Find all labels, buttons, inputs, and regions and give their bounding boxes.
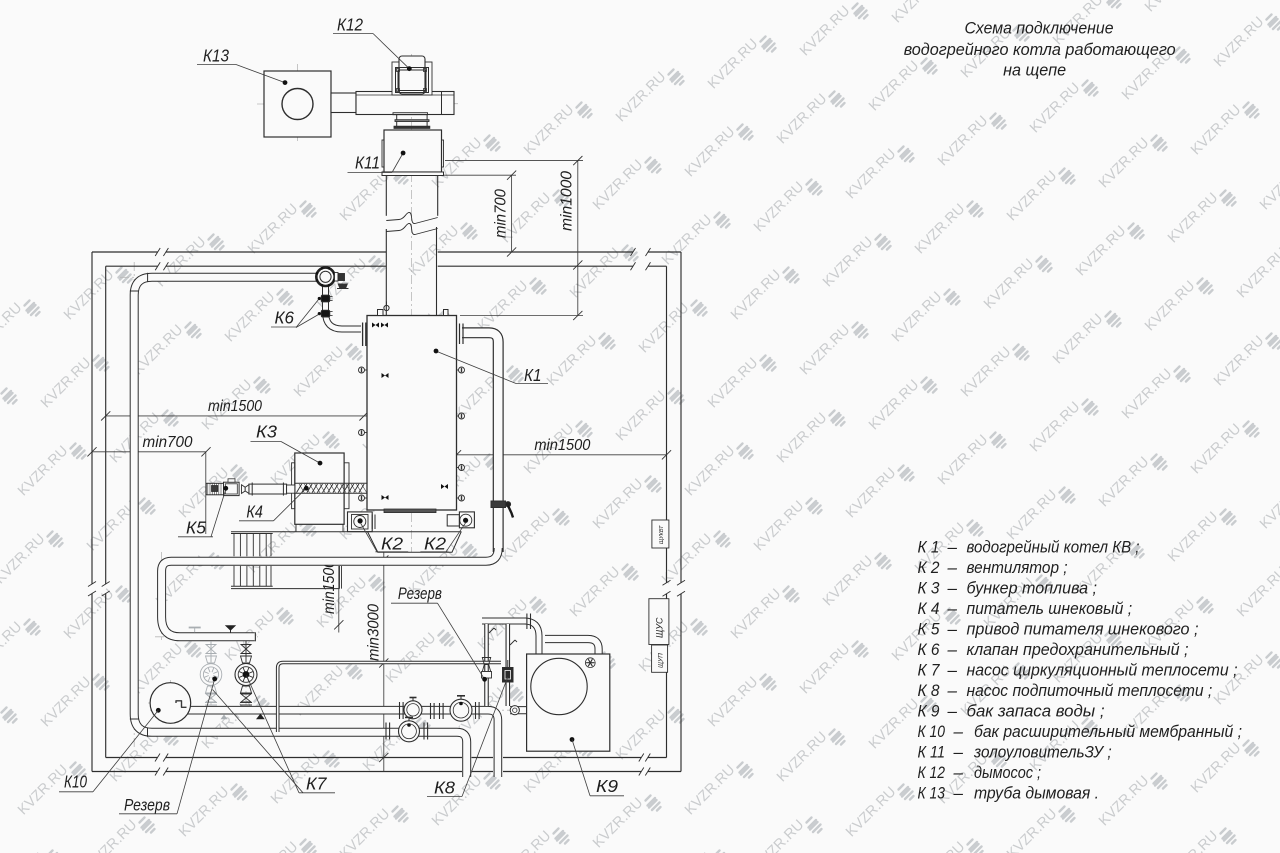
svg-text:К3: К3 (256, 422, 277, 442)
svg-text:К13: К13 (203, 46, 229, 66)
svg-text:–: – (953, 722, 964, 741)
svg-text:–: – (947, 620, 958, 639)
svg-text:min1500: min1500 (208, 398, 262, 415)
svg-text:К 5: К 5 (918, 620, 940, 639)
svg-text:К2: К2 (381, 534, 403, 554)
svg-text:К 3: К 3 (918, 579, 940, 598)
svg-text:водогрейного котла работающего: водогрейного котла работающего (904, 40, 1176, 59)
svg-text:водогрейный котел КВ ;: водогрейный котел КВ ; (967, 538, 1140, 557)
svg-text:труба дымовая .: труба дымовая . (974, 784, 1099, 803)
svg-text:Резерв: Резерв (124, 796, 170, 815)
svg-text:–: – (947, 640, 958, 659)
svg-text:клапан предохранительный ;: клапан предохранительный ; (967, 640, 1189, 659)
svg-text:Резерв: Резерв (398, 584, 442, 603)
svg-text:ЩУП: ЩУП (658, 653, 665, 668)
svg-text:К6: К6 (275, 308, 295, 328)
svg-text:К 1: К 1 (918, 538, 940, 557)
svg-text:К5: К5 (186, 518, 206, 538)
svg-text:–: – (947, 681, 958, 700)
svg-text:питатель шнековый ;: питатель шнековый ; (967, 599, 1133, 618)
svg-text:ЩУКВТ: ЩУКВТ (659, 525, 665, 544)
svg-text:бункер топлива ;: бункер топлива ; (967, 579, 1098, 598)
svg-text:К 2: К 2 (918, 558, 940, 577)
svg-text:min1500: min1500 (321, 560, 338, 614)
svg-text:дымосос ;: дымосос ; (974, 763, 1041, 782)
svg-text:К12: К12 (337, 15, 363, 35)
svg-text:ЩУС: ЩУС (655, 617, 665, 638)
svg-text:min700: min700 (143, 434, 193, 451)
svg-text:–: – (947, 661, 958, 680)
svg-text:min1000: min1000 (559, 171, 576, 231)
svg-text:К 6: К 6 (918, 640, 940, 659)
svg-text:бак расширительный мембранный: бак расширительный мембранный ; (974, 722, 1242, 741)
svg-text:привод питателя шнекового ;: привод питателя шнекового ; (967, 620, 1199, 639)
svg-text:К1: К1 (524, 365, 542, 385)
svg-text:К 11: К 11 (918, 743, 946, 762)
svg-text:К 7: К 7 (918, 661, 940, 680)
svg-text:К 8: К 8 (918, 681, 940, 700)
svg-text:насос циркуляционный теплосети: насос циркуляционный теплосети ; (967, 661, 1238, 680)
svg-text:–: – (953, 784, 964, 803)
svg-text:К8: К8 (434, 778, 455, 798)
svg-text:–: – (947, 599, 958, 618)
svg-text:К9: К9 (596, 776, 618, 796)
svg-text:Схема подключение: Схема подключение (965, 19, 1114, 38)
svg-text:К 12: К 12 (918, 763, 946, 782)
svg-text:К11: К11 (355, 153, 380, 173)
svg-text:К4: К4 (246, 502, 263, 522)
svg-text:К 9: К 9 (918, 702, 940, 721)
svg-text:–: – (953, 743, 964, 762)
svg-text:–: – (947, 558, 958, 577)
svg-text:насос подпиточный теплосети ;: насос подпиточный теплосети ; (967, 681, 1213, 700)
svg-text:–: – (947, 579, 958, 598)
svg-text:К 13: К 13 (918, 784, 946, 803)
svg-text:min1500: min1500 (534, 437, 590, 454)
svg-text:на щепе: на щепе (1003, 61, 1066, 80)
svg-text:min700: min700 (493, 189, 510, 238)
svg-text:К 10: К 10 (918, 722, 946, 741)
svg-text:–: – (953, 763, 964, 782)
svg-text:золоуловительЗУ ;: золоуловительЗУ ; (973, 743, 1112, 762)
svg-text:вентилятор ;: вентилятор ; (967, 558, 1068, 577)
svg-text:К10: К10 (64, 772, 87, 792)
svg-text:min3000: min3000 (366, 604, 383, 661)
svg-text:К7: К7 (306, 774, 328, 794)
svg-text:–: – (947, 702, 958, 721)
svg-text:бак запаса воды ;: бак запаса воды ; (967, 702, 1105, 721)
svg-text:К 4: К 4 (918, 599, 940, 618)
svg-text:–: – (947, 538, 958, 557)
svg-text:К2: К2 (424, 534, 446, 554)
